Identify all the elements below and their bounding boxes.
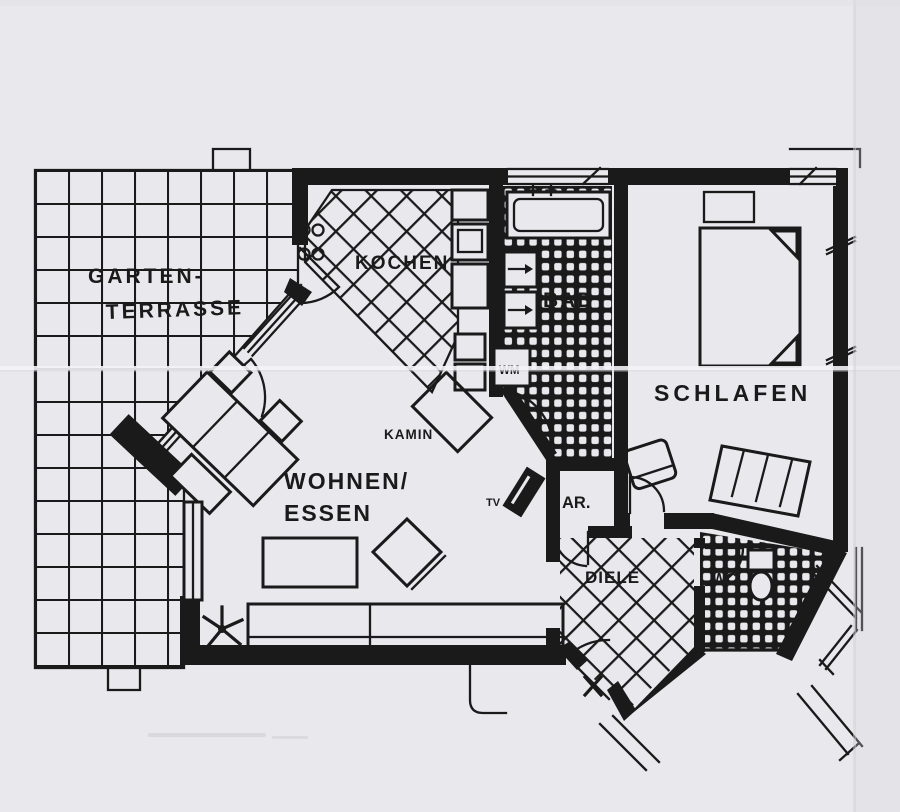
kitchen-label: KOCHEN	[355, 253, 449, 274]
toilet-tank	[748, 550, 774, 570]
floor-plan-svg: WM	[0, 0, 900, 812]
kitchen-counter	[452, 264, 488, 308]
floor-plan-scan: WM	[0, 0, 900, 812]
paper-edge-shadow	[855, 0, 900, 812]
kitchen-counter	[452, 190, 488, 220]
faint-print-smudge	[148, 733, 266, 737]
storage-label: AR.	[562, 494, 590, 512]
bedroom-label: SCHLAFEN	[654, 380, 811, 406]
hall-label: DIELE	[585, 568, 640, 587]
tv-label: TV	[486, 497, 501, 509]
wc-label: WC	[712, 570, 737, 587]
bath-label: BAD	[543, 289, 595, 312]
terrace-label-line2: TERRASSE	[105, 296, 244, 324]
fold-crease-shadow	[0, 370, 900, 372]
top-edge-shade	[0, 0, 900, 6]
living-label-line1: WOHNEN/	[284, 468, 409, 494]
faint-print-smudge	[272, 736, 308, 739]
paper-edge-line	[853, 0, 856, 812]
dining-table	[263, 538, 357, 587]
toilet-bowl	[750, 572, 772, 600]
fold-crease	[0, 366, 900, 370]
fireplace-label: KAMIN	[384, 427, 433, 442]
terrace-label-line1: GARTEN-	[88, 265, 205, 288]
living-label-line2: ESSEN	[284, 500, 372, 526]
kitchen-appliance	[455, 334, 485, 360]
